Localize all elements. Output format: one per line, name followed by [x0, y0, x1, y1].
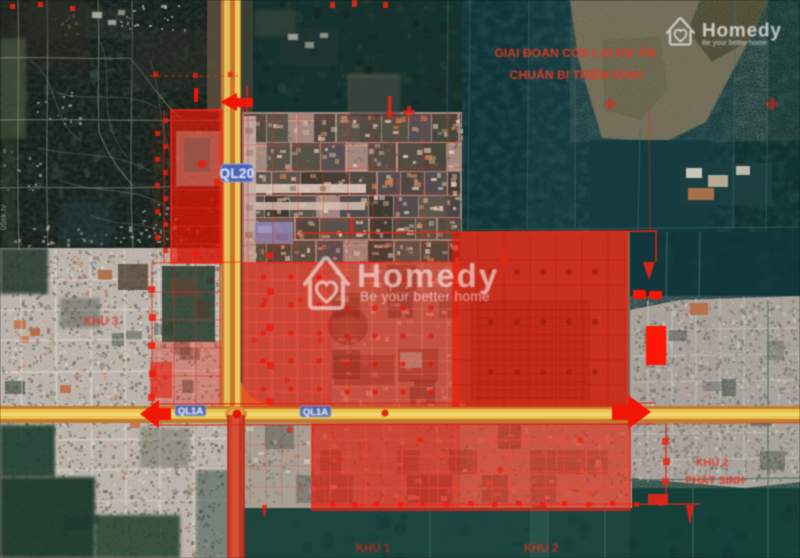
svg-text:QL1A: QL1A — [303, 407, 328, 418]
svg-text:QL20: QL20 — [220, 166, 255, 181]
svg-text:QL1A: QL1A — [178, 406, 203, 417]
svg-text:KHU 3: KHU 3 — [84, 316, 119, 328]
svg-text:KHU 2: KHU 2 — [524, 543, 559, 555]
svg-text:KHU 2: KHU 2 — [695, 457, 728, 469]
svg-text:GIAI ĐOẠN CÒN LẠI DỰ ÁN: GIAI ĐOẠN CÒN LẠI DỰ ÁN — [494, 45, 655, 60]
svg-text:PHÁT SINH: PHÁT SINH — [685, 474, 744, 487]
svg-text:CHUẨN BỊ TRIỂN KHAI: CHUẨN BỊ TRIỂN KHAI — [510, 67, 643, 82]
svg-text:05sk.tv: 05sk.tv — [0, 205, 8, 230]
svg-text:Be your better home: Be your better home — [360, 289, 490, 304]
svg-text:Be your better home: Be your better home — [702, 38, 767, 47]
svg-text:KHU 1: KHU 1 — [356, 543, 391, 555]
